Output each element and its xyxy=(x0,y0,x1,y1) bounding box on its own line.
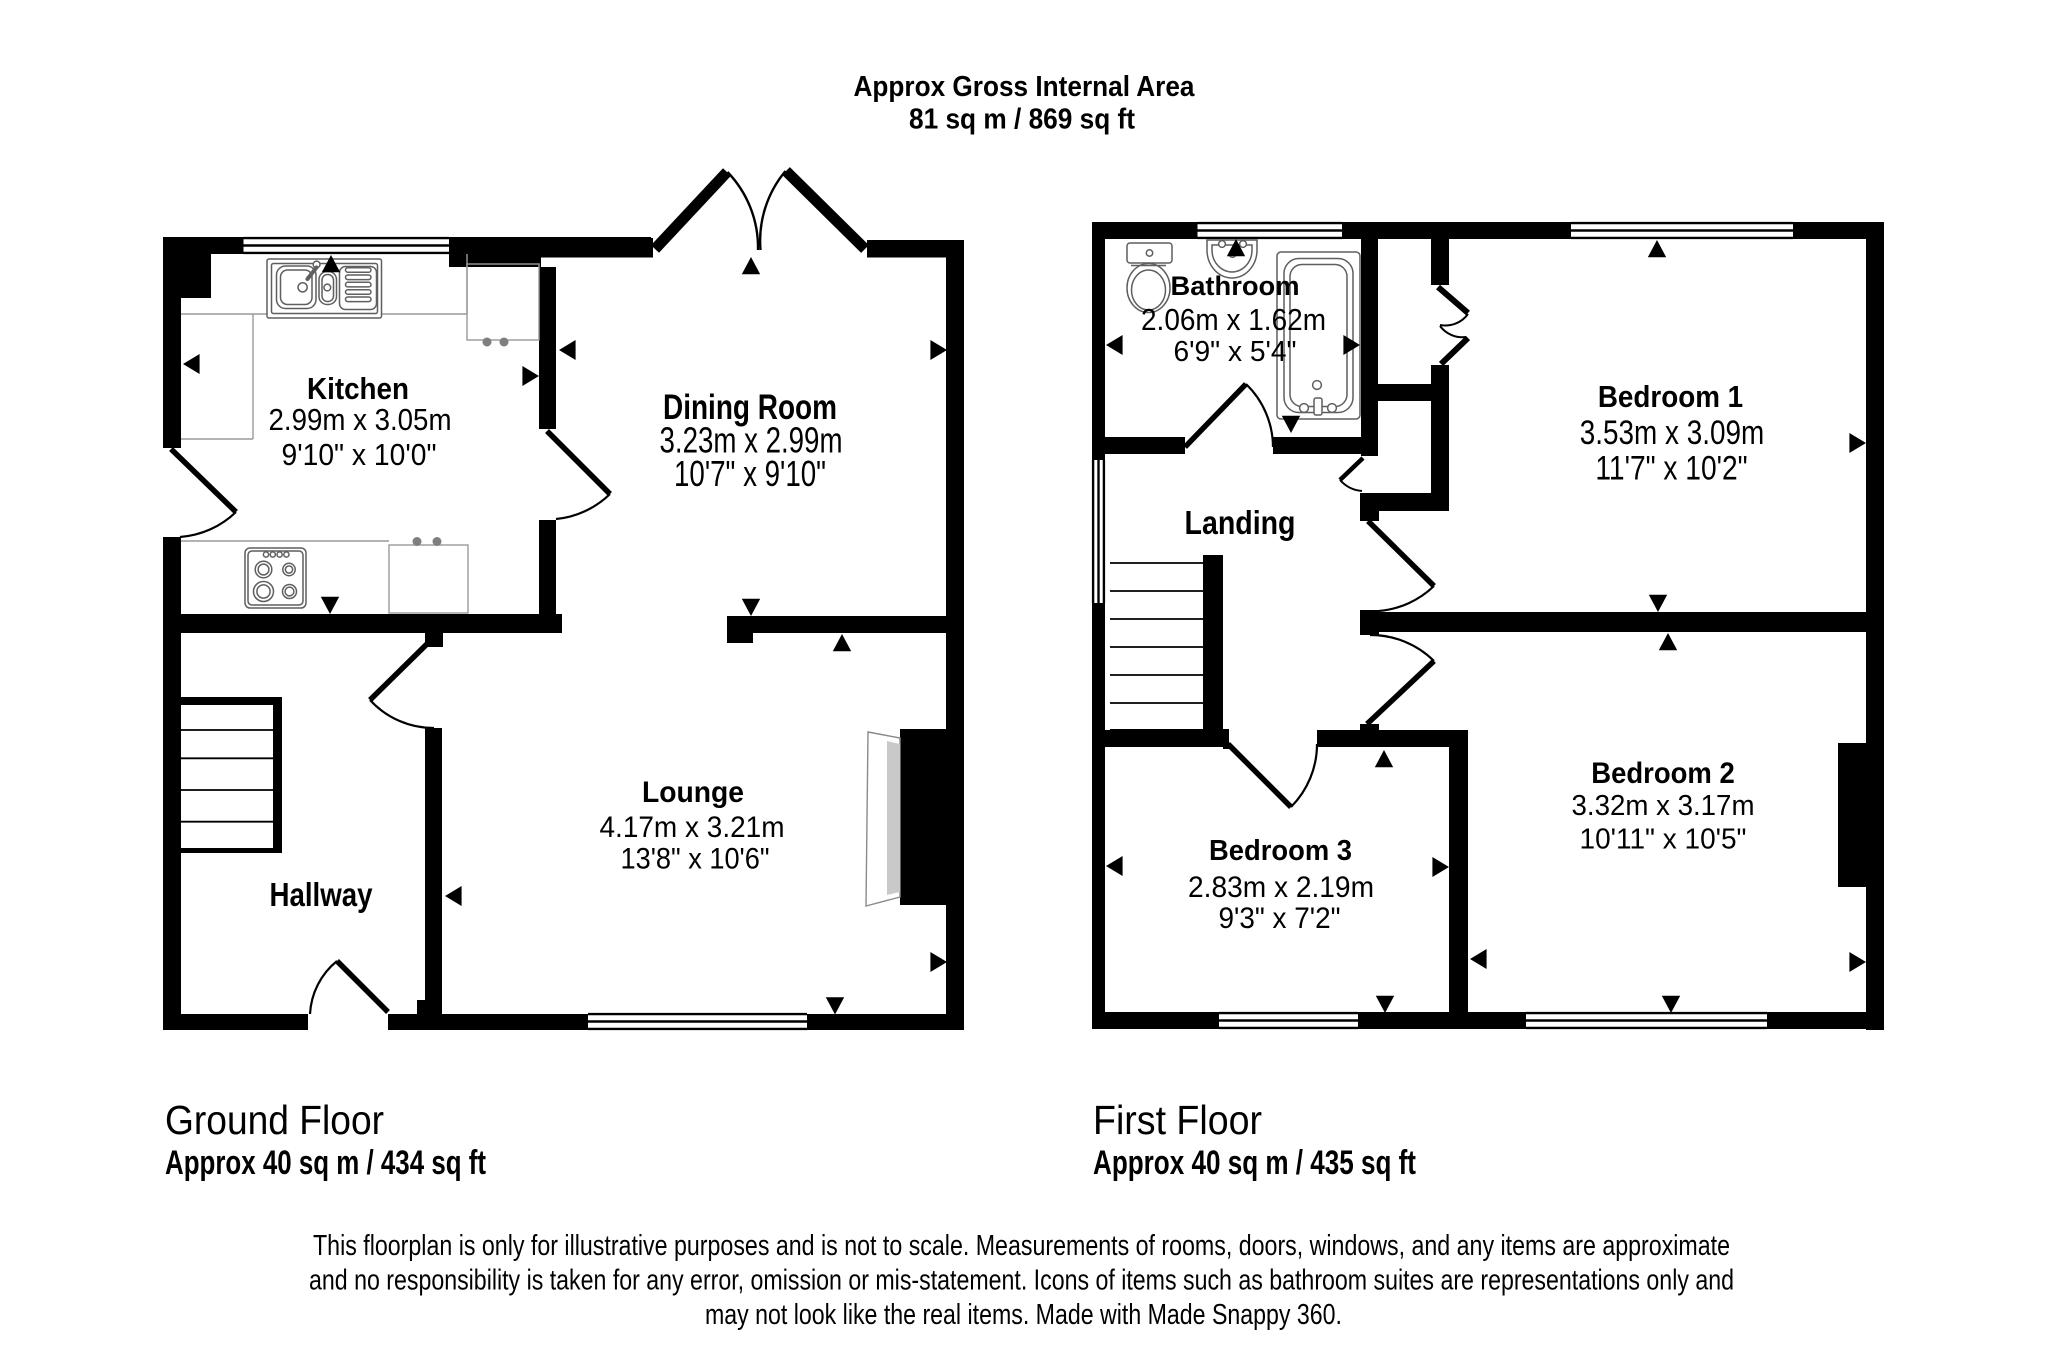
svg-text:and no responsibility is taken: and no responsibility is taken for any e… xyxy=(309,1265,1734,1297)
svg-text:9'3" x 7'2": 9'3" x 7'2" xyxy=(1219,902,1341,935)
svg-text:81 sq m / 869 sq ft: 81 sq m / 869 sq ft xyxy=(909,104,1135,136)
svg-text:10'7" x 9'10": 10'7" x 9'10" xyxy=(674,453,826,494)
svg-text:First Floor: First Floor xyxy=(1093,1097,1262,1143)
svg-text:10'11" x 10'5": 10'11" x 10'5" xyxy=(1580,824,1747,856)
svg-text:This floorplan is only for ill: This floorplan is only for illustrative … xyxy=(313,1230,1730,1262)
svg-text:3.32m x 3.17m: 3.32m x 3.17m xyxy=(1572,790,1755,822)
svg-text:4.17m x 3.21m: 4.17m x 3.21m xyxy=(600,811,785,844)
svg-text:Kitchen: Kitchen xyxy=(307,371,409,406)
svg-text:2.83m x 2.19m: 2.83m x 2.19m xyxy=(1188,871,1374,904)
svg-text:9'10" x 10'0": 9'10" x 10'0" xyxy=(282,437,437,472)
svg-text:2.99m x 3.05m: 2.99m x 3.05m xyxy=(269,402,452,437)
svg-text:Ground Floor: Ground Floor xyxy=(165,1097,384,1143)
svg-text:Landing: Landing xyxy=(1185,504,1296,541)
svg-text:Approx 40 sq m / 434 sq ft: Approx 40 sq m / 434 sq ft xyxy=(165,1144,486,1182)
svg-text:6'9" x 5'4": 6'9" x 5'4" xyxy=(1174,336,1297,368)
svg-text:11'7" x 10'2": 11'7" x 10'2" xyxy=(1595,450,1747,488)
svg-text:Bedroom 2: Bedroom 2 xyxy=(1591,757,1735,790)
svg-text:Lounge: Lounge xyxy=(642,776,744,809)
svg-text:may not look like the real ite: may not look like the real items. Made w… xyxy=(705,1299,1342,1331)
svg-text:Bedroom 3: Bedroom 3 xyxy=(1209,835,1352,867)
svg-text:13'8" x 10'6": 13'8" x 10'6" xyxy=(621,843,770,876)
svg-text:2.06m x 1.62m: 2.06m x 1.62m xyxy=(1141,303,1326,337)
svg-text:Approx Gross Internal Area: Approx Gross Internal Area xyxy=(854,71,1196,103)
svg-text:Hallway: Hallway xyxy=(270,877,373,914)
svg-text:Bedroom 1: Bedroom 1 xyxy=(1598,380,1743,414)
svg-text:Approx 40 sq m / 435 sq ft: Approx 40 sq m / 435 sq ft xyxy=(1093,1144,1416,1182)
svg-text:Bathroom: Bathroom xyxy=(1171,271,1300,301)
svg-text:3.53m x 3.09m: 3.53m x 3.09m xyxy=(1580,414,1764,452)
